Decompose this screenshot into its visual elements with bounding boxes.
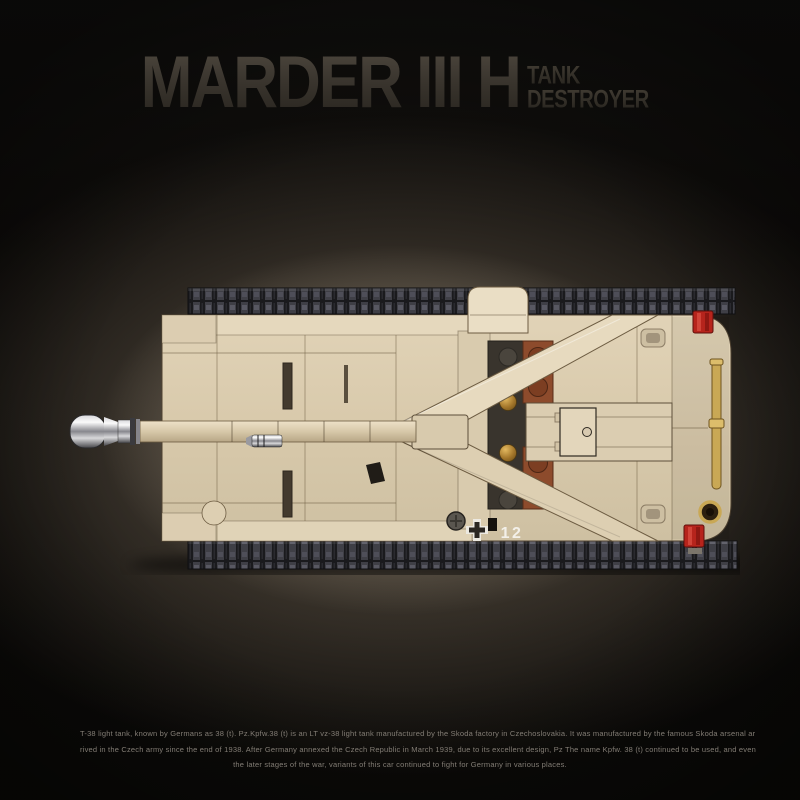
page-subtitle: TANK DESTROYER <box>527 65 659 113</box>
tank-model-image: 12 <box>60 275 740 575</box>
description-line-1: T-38 light tank, known by Germans as 38 … <box>80 726 720 742</box>
tank-top-view: 12 <box>60 275 740 575</box>
hatch-lever <box>488 518 497 531</box>
description-line-2: rived in the Czech army since the end of… <box>80 742 720 758</box>
tail-light-top <box>693 311 713 333</box>
gun-breech <box>526 403 672 461</box>
turret-number: 12 <box>501 525 524 542</box>
vision-slot-upper <box>283 363 292 409</box>
header: MARDER III H TANK DESTROYER <box>0 62 800 114</box>
description-line-3: the later stages of the war, variants of… <box>80 757 720 773</box>
track-top <box>188 288 735 314</box>
headlight <box>202 501 226 525</box>
track-bottom <box>188 541 737 569</box>
muzzle-brake-icon <box>70 415 140 448</box>
machine-gun <box>246 435 282 447</box>
product-description: T-38 light tank, known by Germans as 38 … <box>80 726 720 773</box>
shield-overhang <box>468 287 528 333</box>
subtitle-line-2: DESTROYER <box>527 85 649 113</box>
vision-slot-lower <box>283 471 292 517</box>
barrel-cradle <box>412 415 468 449</box>
periscope-icon <box>447 512 465 530</box>
page-title: MARDER III H <box>141 53 520 114</box>
